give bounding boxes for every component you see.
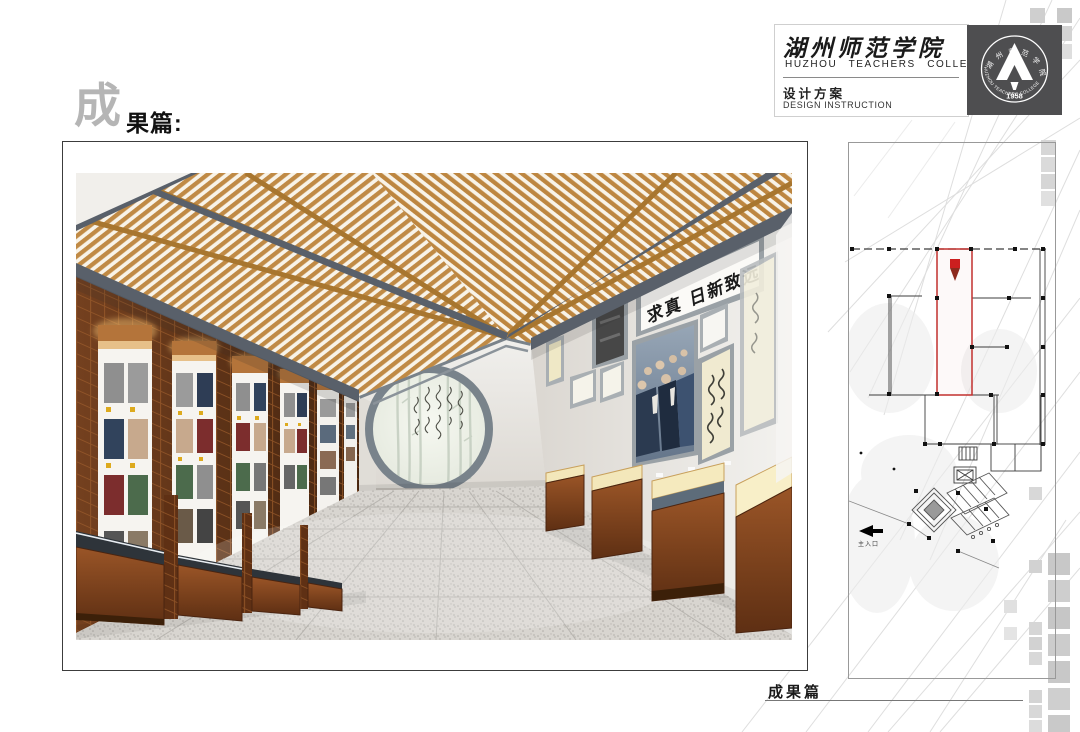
- display-case: [252, 569, 300, 615]
- display-case: [546, 465, 584, 531]
- overexposed-wall-band: [776, 213, 792, 483]
- floor-plan: 主入口: [849, 143, 1055, 678]
- exhibition-hall-render: 求真 日新致远: [76, 173, 792, 640]
- footer-underline: [765, 700, 1023, 701]
- college-name-cn: 湖州师范学院: [783, 29, 945, 63]
- highlighted-zone: [937, 249, 972, 395]
- floor-plan-frame: 主入口: [848, 142, 1056, 679]
- header-divider: [783, 77, 959, 78]
- display-case: [592, 465, 642, 559]
- officials-photo: [632, 319, 698, 467]
- page-title-rest: 果篇:: [126, 104, 183, 138]
- college-seal: 湖 州 师 范 学 院 HUZHOU TEACHERS COLLEGE 1958: [967, 25, 1062, 115]
- display-case: [652, 463, 724, 601]
- design-subtitle-en: DESIGN INSTRUCTION: [783, 100, 892, 110]
- college-header-block: 湖州师范学院 HUZHOU TEACHERS COLLEGE 设计方案 DESI…: [774, 24, 969, 117]
- college-name-en: HUZHOU TEACHERS COLLEGE: [785, 59, 986, 70]
- display-case: [736, 457, 792, 633]
- seal-year: 1958: [1006, 92, 1023, 101]
- calligraphy-scroll: [740, 251, 778, 437]
- presentation-board: 成 果篇: 湖州师范学院 HUZHOU TEACHERS COLLEGE 设计方…: [0, 0, 1080, 732]
- footer-section-label: 成果篇: [768, 681, 822, 702]
- entrance-label: 主入口: [858, 540, 879, 548]
- render-frame: 求真 日新致远: [62, 141, 808, 671]
- page-title-big-char: 成: [74, 82, 121, 129]
- calligraphy-scroll: [698, 343, 734, 465]
